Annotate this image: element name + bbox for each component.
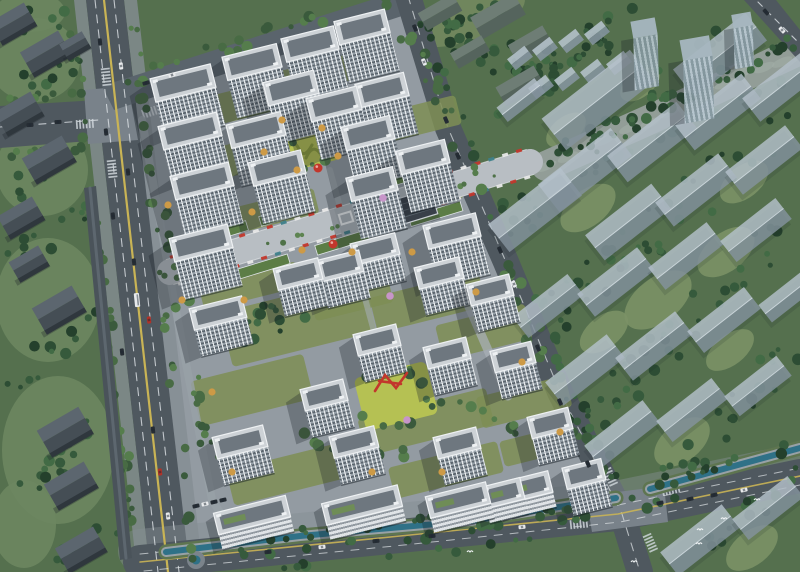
- autumn-tree: [178, 296, 185, 303]
- tree: [394, 421, 403, 430]
- tree: [784, 112, 791, 119]
- tree: [125, 79, 132, 86]
- tree: [627, 3, 638, 14]
- tree: [647, 93, 657, 103]
- tree: [646, 101, 657, 112]
- tree: [59, 6, 70, 17]
- tree: [688, 473, 696, 481]
- tree: [397, 35, 405, 43]
- tree: [688, 462, 697, 471]
- tree: [740, 281, 747, 288]
- tree: [629, 116, 635, 122]
- tree: [472, 165, 478, 171]
- tree: [48, 73, 58, 83]
- tree: [385, 553, 392, 560]
- autumn-tree: [408, 248, 415, 255]
- car-windshield: [167, 515, 170, 518]
- autumn-tree: [260, 148, 267, 155]
- tree: [82, 217, 87, 222]
- tree: [318, 17, 329, 28]
- tree: [623, 386, 630, 393]
- tree: [165, 379, 174, 388]
- tree: [597, 396, 604, 403]
- tree: [307, 534, 314, 541]
- tree: [48, 14, 57, 23]
- tree: [300, 233, 304, 237]
- tree: [604, 41, 613, 50]
- car: [98, 38, 103, 45]
- tree: [35, 375, 40, 380]
- tree: [711, 466, 719, 474]
- tree: [489, 46, 500, 57]
- car: [126, 168, 131, 175]
- tree: [487, 214, 493, 220]
- tree: [461, 182, 466, 187]
- autumn-tree: [208, 388, 215, 395]
- tree: [255, 309, 266, 320]
- autumn-tree: [368, 468, 375, 475]
- tree: [743, 497, 751, 505]
- tree: [293, 563, 301, 571]
- tree: [585, 424, 594, 433]
- tree: [197, 440, 205, 448]
- tree: [730, 282, 739, 291]
- blossom-tree: [386, 292, 394, 300]
- tree: [29, 341, 40, 352]
- tree: [584, 260, 589, 265]
- tree: [357, 411, 367, 421]
- tree: [303, 530, 308, 535]
- tree: [280, 240, 286, 246]
- tree: [68, 68, 77, 77]
- tree: [50, 90, 57, 97]
- autumn-tree: [298, 246, 305, 253]
- tree: [776, 347, 781, 352]
- tree: [67, 88, 76, 97]
- tree: [689, 290, 697, 298]
- tree: [196, 375, 201, 380]
- tree: [186, 544, 196, 554]
- tree: [138, 51, 143, 56]
- tree: [77, 89, 86, 98]
- car-windshield: [148, 319, 151, 322]
- tree: [670, 494, 679, 503]
- car-windshield: [521, 526, 524, 529]
- tree: [85, 314, 92, 321]
- tree: [31, 233, 37, 239]
- tree: [655, 480, 665, 490]
- tree: [573, 417, 581, 425]
- tree: [468, 150, 479, 161]
- tree: [661, 472, 669, 480]
- tree: [550, 332, 561, 343]
- tree: [182, 517, 190, 525]
- tree: [754, 58, 763, 67]
- car: [166, 512, 171, 519]
- tree: [642, 240, 649, 247]
- tree: [605, 18, 612, 25]
- car-windshield: [99, 41, 102, 44]
- autumn-tree: [278, 116, 285, 123]
- sphere-highlight: [316, 165, 319, 168]
- tree: [49, 349, 54, 354]
- tree: [198, 422, 207, 431]
- car-windshield: [321, 546, 324, 549]
- tree: [582, 42, 591, 51]
- car-windshield: [127, 171, 130, 174]
- tree: [513, 537, 518, 542]
- tree: [278, 328, 283, 333]
- tree: [585, 413, 591, 419]
- tree: [174, 59, 180, 65]
- autumn-tree: [348, 248, 355, 255]
- tree: [80, 76, 86, 82]
- autumn-tree: [318, 124, 325, 131]
- tree: [623, 134, 628, 139]
- tree: [77, 132, 88, 143]
- tree: [720, 286, 730, 296]
- tree: [202, 44, 209, 51]
- car-windshield: [133, 261, 136, 264]
- tree: [261, 24, 270, 33]
- tree: [468, 527, 475, 534]
- tree: [15, 187, 24, 196]
- tree: [708, 207, 717, 216]
- tree: [129, 506, 135, 512]
- tree: [793, 465, 799, 471]
- tree: [83, 119, 88, 124]
- tree: [435, 545, 442, 552]
- car: [518, 525, 525, 530]
- tree: [454, 33, 465, 44]
- car: [26, 123, 33, 127]
- tree: [181, 444, 190, 453]
- tree: [476, 184, 487, 195]
- tree: [678, 459, 687, 468]
- tree: [585, 408, 591, 414]
- tree: [281, 565, 287, 571]
- tree: [28, 81, 36, 89]
- car: [428, 534, 435, 539]
- tree: [657, 247, 664, 254]
- tree: [451, 547, 461, 557]
- tree: [19, 70, 29, 80]
- tree: [129, 26, 134, 31]
- tree: [551, 354, 562, 365]
- tree: [238, 547, 244, 553]
- tree: [722, 434, 730, 442]
- tree: [769, 44, 775, 50]
- tree: [79, 210, 85, 216]
- autumn-tree: [472, 288, 479, 295]
- tree: [18, 385, 23, 390]
- tree: [157, 62, 164, 69]
- tree: [527, 536, 533, 542]
- autumn-tree: [334, 152, 341, 159]
- tree: [491, 416, 497, 422]
- tree: [660, 465, 667, 472]
- tree: [37, 485, 43, 491]
- tree: [642, 503, 653, 514]
- tree: [160, 323, 170, 333]
- tree: [5, 381, 11, 387]
- tree: [764, 251, 770, 257]
- tree: [46, 243, 57, 254]
- tree: [666, 462, 673, 469]
- tree: [69, 207, 75, 213]
- autumn-tree: [556, 428, 563, 435]
- tree: [420, 52, 425, 57]
- tree: [170, 364, 177, 371]
- tree: [407, 32, 417, 42]
- autumn-tree: [438, 468, 445, 475]
- tree: [486, 539, 496, 549]
- tree: [777, 42, 788, 53]
- tree: [465, 32, 473, 40]
- car: [119, 62, 124, 69]
- tree: [659, 96, 664, 101]
- tree: [266, 242, 269, 245]
- tree: [234, 35, 244, 45]
- tree: [195, 393, 205, 403]
- tree: [549, 64, 558, 73]
- tree: [457, 399, 463, 405]
- blossom-tree: [403, 416, 411, 424]
- car: [54, 120, 61, 124]
- car: [111, 212, 116, 219]
- car-windshield: [375, 540, 378, 543]
- car: [151, 426, 156, 433]
- tree: [134, 27, 140, 33]
- car: [147, 316, 152, 323]
- tree: [776, 448, 787, 459]
- tree: [479, 407, 487, 415]
- tree: [13, 148, 20, 155]
- car-windshield: [159, 471, 162, 474]
- car-windshield: [267, 551, 270, 554]
- tree: [448, 108, 454, 114]
- tree: [683, 439, 694, 450]
- car: [372, 539, 379, 544]
- tree: [423, 78, 428, 83]
- tree: [25, 376, 33, 384]
- tree: [445, 38, 450, 43]
- tree: [725, 459, 732, 466]
- car: [132, 258, 137, 265]
- tree: [149, 61, 157, 69]
- tree: [437, 398, 445, 406]
- tree: [562, 322, 572, 332]
- tree: [670, 479, 679, 488]
- car: [120, 348, 125, 355]
- tree: [201, 430, 209, 438]
- tree: [124, 451, 134, 461]
- tree: [614, 402, 622, 410]
- tree: [633, 390, 644, 401]
- tree: [66, 326, 77, 337]
- tree: [125, 484, 134, 493]
- tree: [42, 95, 49, 102]
- car: [318, 545, 325, 550]
- tree: [433, 81, 441, 89]
- car-windshield: [29, 124, 32, 127]
- tree: [70, 451, 77, 458]
- tree: [442, 108, 448, 114]
- tree: [181, 472, 188, 479]
- autumn-tree: [248, 208, 255, 215]
- tree: [503, 260, 513, 270]
- tree: [427, 34, 435, 42]
- tree: [40, 472, 51, 483]
- car-windshield: [121, 351, 124, 354]
- car-windshield: [431, 535, 434, 538]
- tree: [5, 250, 12, 257]
- tree: [283, 536, 290, 543]
- autumn-tree: [240, 296, 247, 303]
- tree: [490, 69, 497, 76]
- tree: [655, 241, 663, 249]
- aerial-masterplan-rendering: [0, 0, 800, 572]
- tree: [56, 24, 62, 30]
- tree: [404, 536, 412, 544]
- rendering-canvas: [0, 0, 800, 572]
- tree: [431, 97, 440, 106]
- car-windshield: [120, 65, 123, 68]
- tree: [466, 401, 477, 412]
- tree: [515, 277, 527, 289]
- tree: [476, 3, 483, 10]
- tree: [468, 140, 475, 147]
- tree: [783, 34, 791, 42]
- tree: [675, 352, 684, 361]
- car-windshield: [105, 131, 108, 134]
- tree: [789, 44, 797, 52]
- tree: [576, 54, 582, 60]
- tree: [398, 445, 407, 454]
- blossom-tree: [379, 194, 387, 202]
- tree: [769, 351, 776, 358]
- tree: [295, 232, 300, 237]
- tree: [58, 216, 65, 223]
- tree: [700, 469, 705, 474]
- tree: [55, 458, 65, 468]
- car-windshield: [152, 429, 155, 432]
- tree: [288, 24, 293, 29]
- tree: [14, 171, 24, 181]
- tree: [447, 142, 457, 152]
- car: [104, 128, 109, 135]
- tree: [254, 319, 262, 327]
- red-sphere-sculpture: [329, 240, 338, 249]
- tree: [443, 84, 450, 91]
- tree: [379, 422, 387, 430]
- car-windshield: [57, 121, 60, 124]
- tree: [17, 480, 24, 487]
- autumn-tree: [164, 201, 171, 208]
- tree: [160, 317, 166, 323]
- autumn-tree: [293, 166, 300, 173]
- tree: [77, 144, 86, 153]
- tree: [460, 114, 466, 120]
- tree: [765, 51, 770, 56]
- tree: [493, 174, 496, 177]
- tree: [418, 22, 424, 28]
- car-windshield: [112, 215, 115, 218]
- autumn-tree: [228, 468, 235, 475]
- tree: [302, 544, 311, 553]
- tree: [629, 495, 636, 502]
- tree: [309, 14, 316, 21]
- tree: [189, 555, 197, 563]
- sphere-highlight: [331, 241, 334, 244]
- tree: [546, 160, 554, 168]
- car: [264, 550, 271, 555]
- tree: [347, 536, 356, 545]
- tree: [608, 474, 614, 480]
- tree: [6, 94, 13, 101]
- car: [158, 468, 163, 475]
- tree: [768, 263, 773, 268]
- tree: [440, 68, 449, 77]
- tree: [60, 348, 71, 359]
- tree: [429, 403, 436, 410]
- tree: [755, 355, 765, 365]
- red-sphere-sculpture: [314, 164, 323, 173]
- tree: [641, 113, 652, 124]
- tree: [41, 466, 48, 473]
- autumn-tree: [518, 358, 525, 365]
